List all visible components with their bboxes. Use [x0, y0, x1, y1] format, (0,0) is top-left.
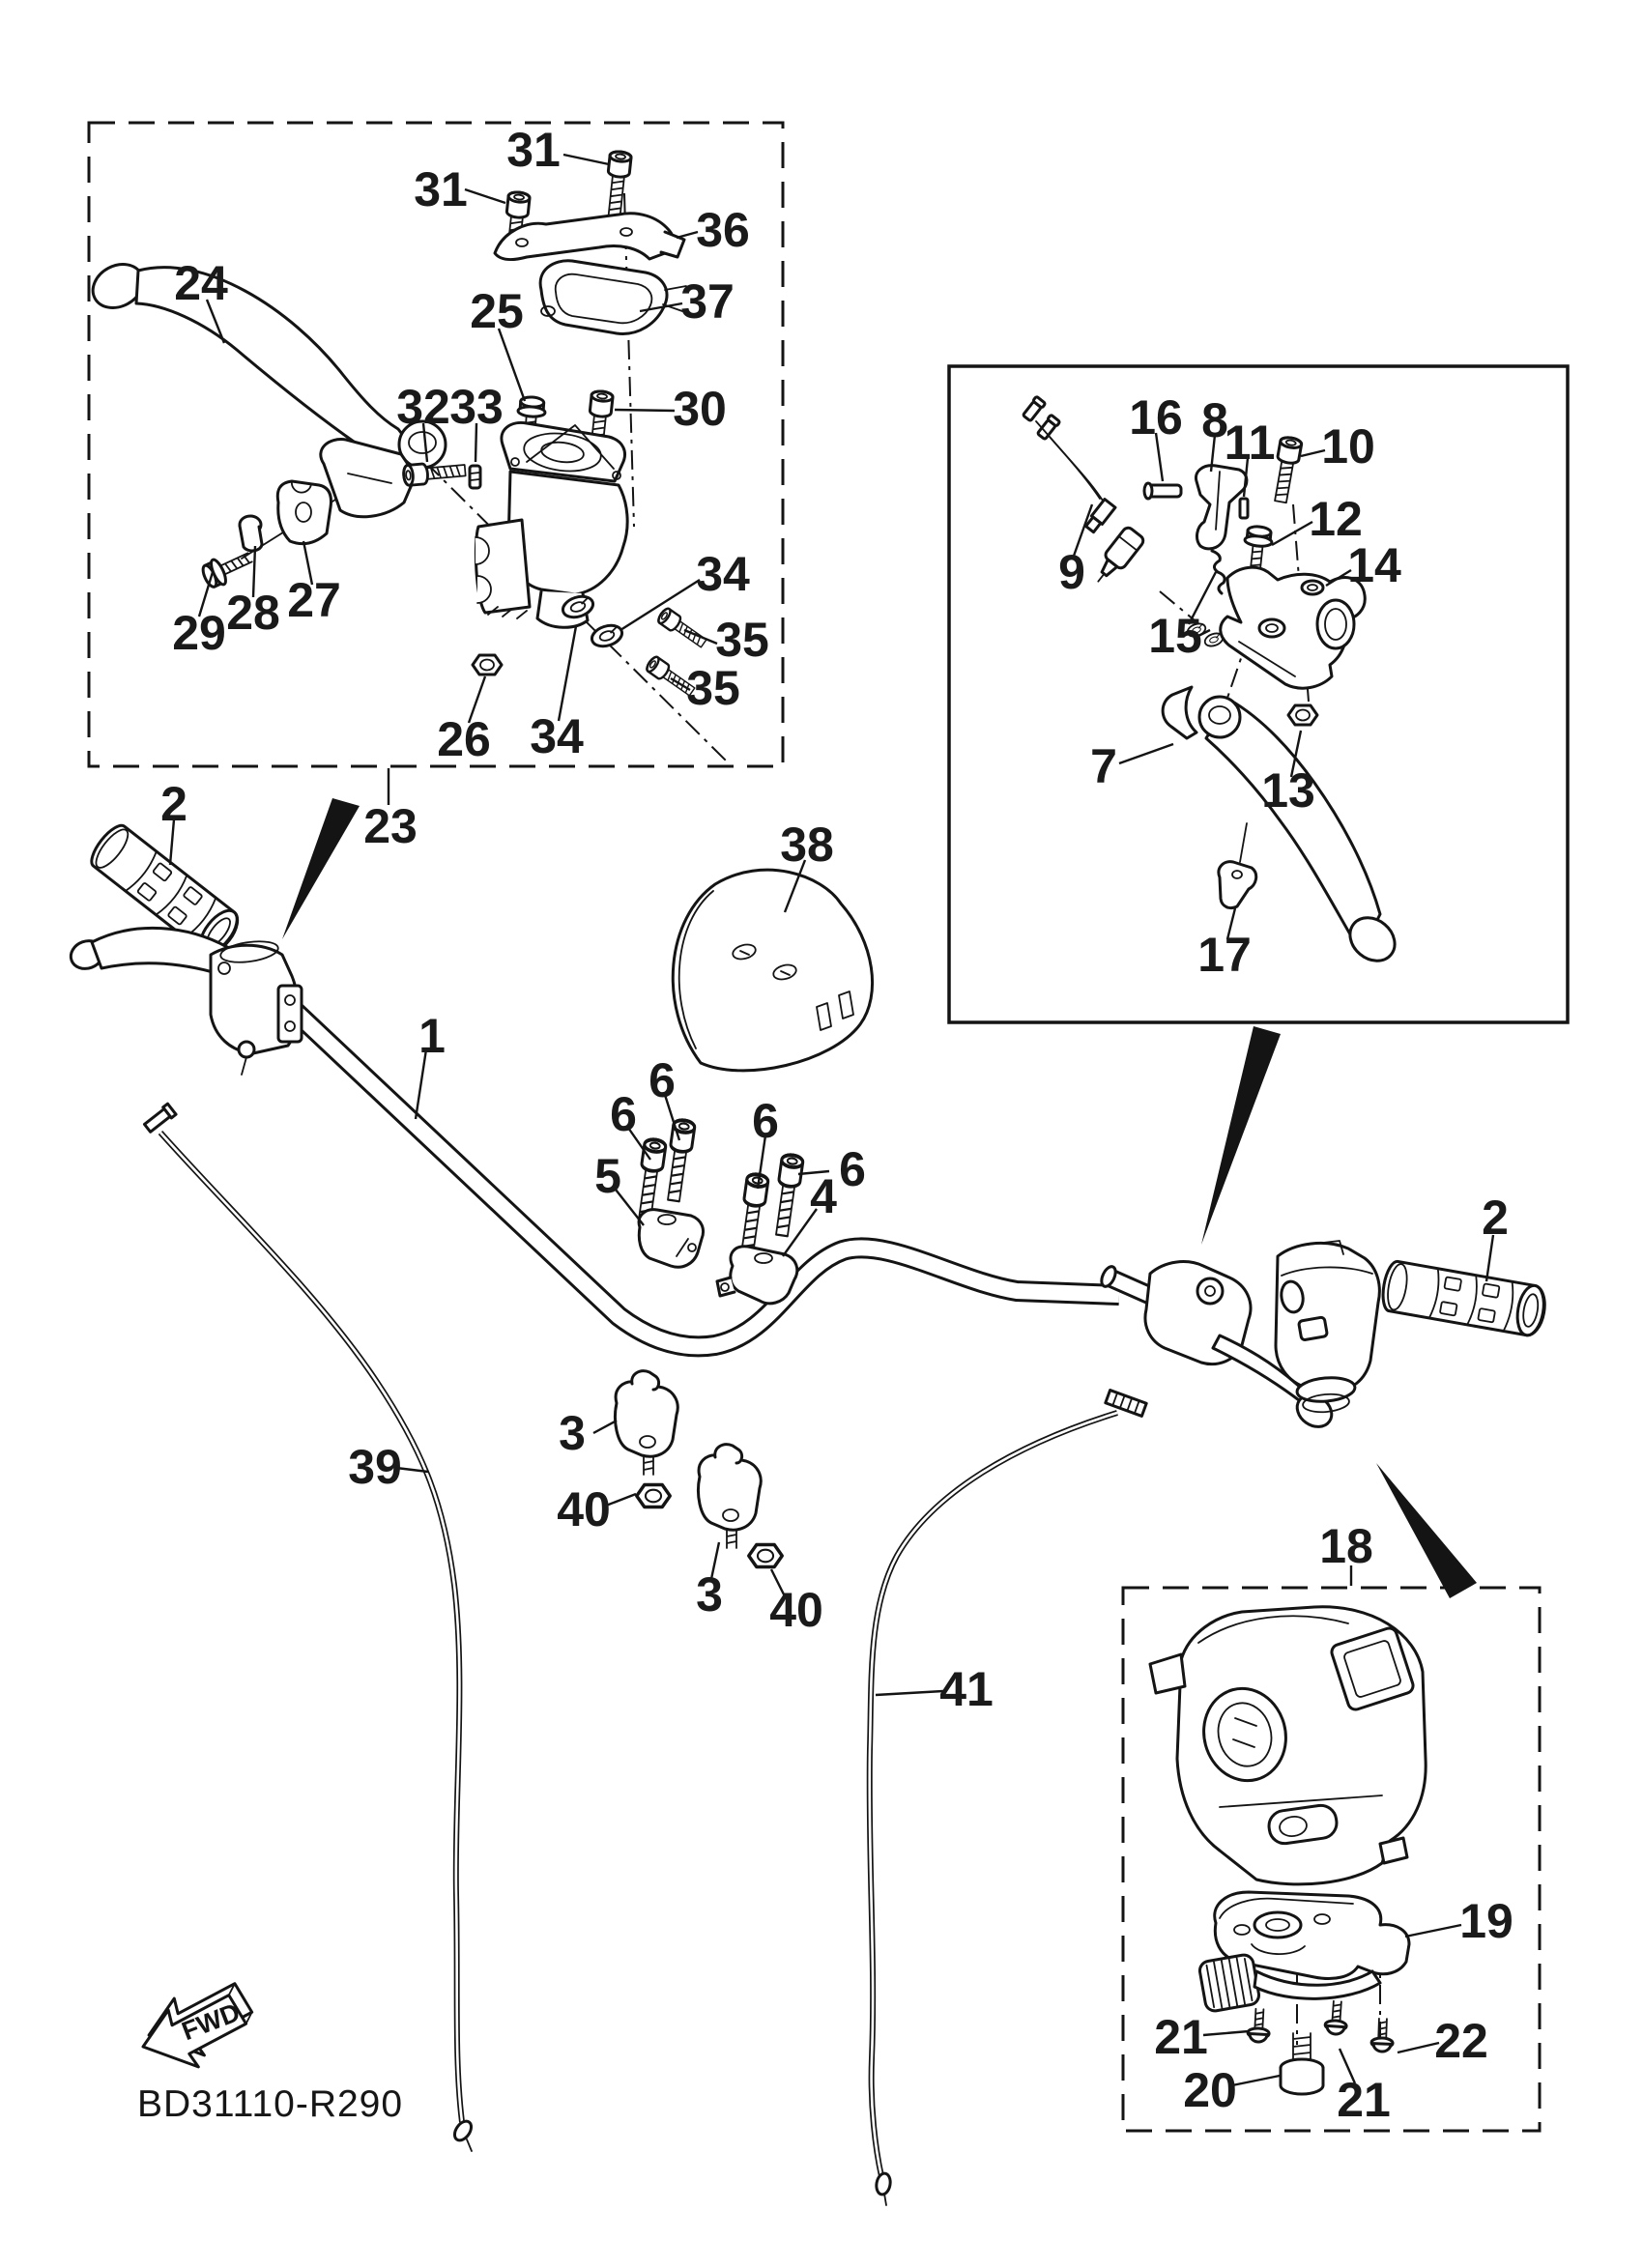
- part-label-18: 18: [1319, 1522, 1373, 1570]
- diagram-code: BD31110-R290: [137, 2083, 403, 2126]
- part-label-1: 1: [418, 1012, 446, 1060]
- part-label-20: 20: [1183, 2066, 1237, 2114]
- nut-13: [1288, 705, 1317, 725]
- part-label-6: 6: [610, 1090, 637, 1138]
- handlebar-cover-38: [673, 870, 872, 1071]
- part-label-33: 33: [449, 383, 504, 431]
- part-label-40: 40: [769, 1586, 823, 1634]
- part-label-6: 6: [752, 1097, 779, 1145]
- pin-16: [1144, 483, 1181, 499]
- screw-21: [1325, 2000, 1348, 2034]
- part-label-2: 2: [160, 780, 187, 828]
- pin-11: [1240, 499, 1248, 518]
- part-label-30: 30: [673, 385, 727, 433]
- pointer-wedge-switch: [1376, 1463, 1477, 1598]
- screw-20: [1281, 2033, 1323, 2094]
- part-label-35: 35: [686, 664, 740, 712]
- cable-41: [870, 1391, 1147, 2205]
- part-label-13: 13: [1261, 766, 1315, 815]
- part-label-16: 16: [1129, 393, 1183, 442]
- bolt-6: [771, 1154, 803, 1237]
- switch-housing-18: [1150, 1607, 1426, 1884]
- part-label-21: 21: [1154, 2013, 1208, 2061]
- assembled-brake-master-cylinder-23: [67, 928, 302, 1075]
- nut-40: [637, 1485, 671, 1507]
- bushing-28: [240, 516, 262, 551]
- part-label-22: 22: [1434, 2017, 1488, 2065]
- part-label-2: 2: [1482, 1193, 1509, 1242]
- brake-lever-24: [85, 256, 446, 517]
- part-label-9: 9: [1058, 548, 1085, 596]
- screw-22: [1371, 2019, 1394, 2053]
- part-label-3: 3: [559, 1409, 586, 1457]
- part-label-21: 21: [1337, 2076, 1391, 2124]
- right-grip-2: [1380, 1260, 1548, 1337]
- part-label-34: 34: [530, 712, 584, 761]
- diaphragm-plate-37: [540, 261, 686, 334]
- master-cylinder-body: [476, 422, 627, 627]
- part-label-31: 31: [506, 126, 561, 174]
- part-label-17: 17: [1197, 931, 1252, 979]
- part-label-23: 23: [363, 802, 418, 850]
- washer-34: [590, 622, 625, 650]
- part-label-4: 4: [810, 1172, 837, 1220]
- part-label-25: 25: [470, 287, 524, 335]
- part-label-6: 6: [839, 1145, 866, 1193]
- part-label-14: 14: [1347, 541, 1401, 589]
- screw-31: [604, 151, 632, 217]
- nut-26: [473, 655, 502, 675]
- part-label-10: 10: [1321, 422, 1375, 471]
- part-label-38: 38: [780, 820, 834, 869]
- part-label-39: 39: [348, 1443, 402, 1491]
- part-label-11: 11: [1225, 418, 1276, 467]
- part-label-24: 24: [174, 259, 228, 307]
- part-label-26: 26: [437, 715, 491, 763]
- screw-21: [1248, 2008, 1271, 2042]
- part-label-29: 29: [172, 609, 226, 657]
- part-label-3: 3: [696, 1570, 723, 1619]
- bolt-6: [736, 1173, 768, 1256]
- diagram-canvas: FWD: [0, 0, 1643, 2268]
- spring-15: [1212, 551, 1225, 593]
- part-label-28: 28: [226, 589, 280, 637]
- part-label-34: 34: [696, 550, 750, 598]
- pin-33: [470, 466, 480, 488]
- part-label-32: 32: [396, 383, 450, 431]
- part-label-40: 40: [557, 1485, 611, 1534]
- part-label-5: 5: [594, 1152, 621, 1200]
- throttle-guide-19: [1198, 1892, 1409, 2012]
- part-label-41: 41: [939, 1665, 994, 1713]
- cable-39: [143, 1104, 475, 2151]
- adjuster-17: [1219, 823, 1256, 908]
- handle-clamp-3: [699, 1445, 762, 1548]
- handle-clamp-3: [616, 1371, 678, 1475]
- fwd-arrow: FWD: [130, 1974, 263, 2082]
- clutch-lever-holder-14: [1221, 567, 1366, 688]
- part-label-15: 15: [1148, 612, 1202, 660]
- part-label-19: 19: [1459, 1897, 1513, 1945]
- diagram-svg: FWD: [0, 0, 1643, 2268]
- part-label-36: 36: [696, 206, 750, 254]
- pointer-wedge-clutch: [1201, 1026, 1281, 1245]
- parts-diagram-page: FWD 313136372524323330292827263434353523…: [0, 0, 1643, 2268]
- screw-35: [656, 607, 708, 650]
- pointer-wedge-23: [282, 798, 360, 939]
- part-label-12: 12: [1309, 495, 1363, 543]
- part-label-31: 31: [414, 165, 468, 214]
- part-label-35: 35: [715, 616, 769, 664]
- nut-40: [749, 1545, 783, 1567]
- lever-holder-27: [277, 481, 331, 544]
- handle-holder-upper-5: [639, 1210, 703, 1268]
- part-label-27: 27: [287, 576, 341, 624]
- part-label-6: 6: [649, 1056, 676, 1105]
- part-label-7: 7: [1090, 742, 1117, 790]
- bolt-6: [663, 1119, 695, 1202]
- part-label-37: 37: [680, 277, 735, 326]
- detail-box-brake-master-cylinder: [85, 123, 783, 766]
